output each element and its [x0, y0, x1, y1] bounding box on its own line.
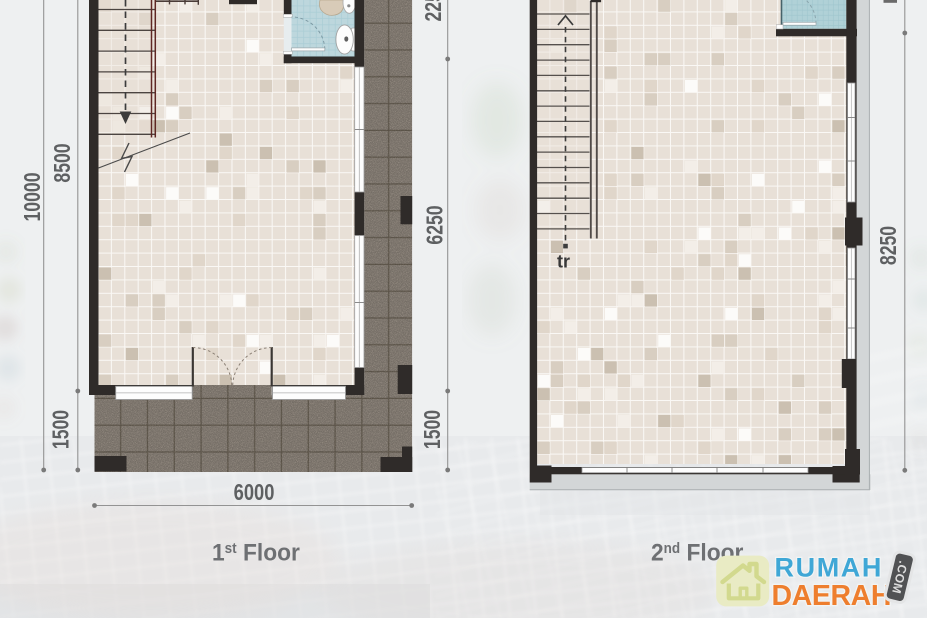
svg-text:DAERAH: DAERAH: [772, 580, 892, 612]
svg-text:RUMAH: RUMAH: [775, 553, 884, 583]
svg-text:6000: 6000: [234, 480, 275, 506]
svg-text:6250: 6250: [422, 205, 448, 244]
svg-text:8500: 8500: [50, 143, 76, 182]
svg-text:tr: tr: [557, 252, 570, 272]
svg-text:8250: 8250: [876, 226, 902, 265]
svg-text:10000: 10000: [20, 172, 46, 221]
svg-text:2250: 2250: [421, 0, 447, 22]
svg-text:1500: 1500: [420, 410, 446, 449]
svg-text:1500: 1500: [48, 410, 74, 449]
